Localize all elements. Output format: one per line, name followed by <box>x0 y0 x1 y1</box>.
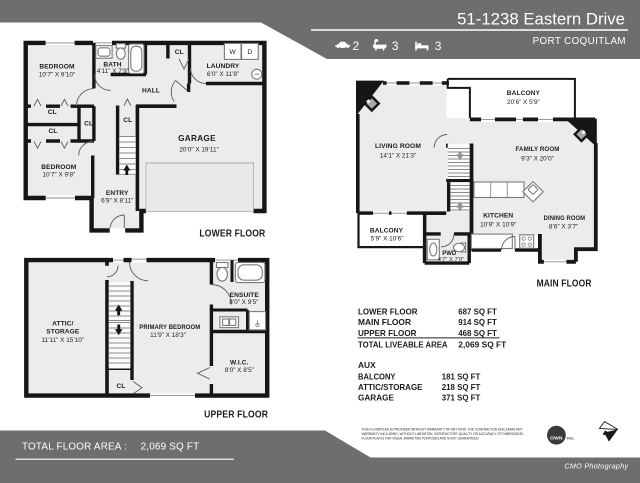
svg-text:GARAGE: GARAGE <box>178 134 216 143</box>
svg-text:D: D <box>247 49 252 56</box>
svg-text:11’11” X 15’10”: 11’11” X 15’10” <box>42 337 84 344</box>
svg-text:CL: CL <box>49 128 58 135</box>
svg-text:10’7” X 9’8”: 10’7” X 9’8” <box>42 172 75 179</box>
svg-text:FLOOR PLAN IS FOR VISUAL MARKE: FLOOR PLAN IS FOR VISUAL MARKETING PURPO… <box>362 437 479 441</box>
svg-text:CL: CL <box>84 121 93 128</box>
svg-text:BALCONY: BALCONY <box>358 372 396 382</box>
svg-text:BEDROOM: BEDROOM <box>39 64 75 71</box>
svg-text:GARAGE: GARAGE <box>358 393 394 403</box>
svg-text:4’7” X 7’0”: 4’7” X 7’0” <box>438 257 464 263</box>
svg-text:BEDROOM: BEDROOM <box>41 164 77 171</box>
svg-text:LOWER FLOOR: LOWER FLOOR <box>199 229 265 240</box>
svg-text:468 SQ FT: 468 SQ FT <box>458 328 497 338</box>
svg-text:LAUNDRY: LAUNDRY <box>207 63 240 70</box>
svg-text:AUX: AUX <box>358 360 376 370</box>
svg-text:10’7” X 9’10”: 10’7” X 9’10” <box>39 72 75 79</box>
svg-text:8’6” X 3’7”: 8’6” X 3’7” <box>549 223 578 230</box>
svg-text:3: 3 <box>392 39 399 53</box>
svg-text:TOTAL FLOOR AREA :: TOTAL FLOOR AREA : <box>22 441 127 452</box>
svg-text:PRIMARY BEDROOM: PRIMARY BEDROOM <box>139 324 200 331</box>
svg-text:BALCONY: BALCONY <box>370 228 404 235</box>
svg-text:11’9” X 18’3”: 11’9” X 18’3” <box>150 332 186 339</box>
svg-text:LOWER FLOOR: LOWER FLOOR <box>358 307 418 317</box>
svg-text:LIVING ROOM: LIVING ROOM <box>375 143 421 150</box>
svg-text:BALCONY: BALCONY <box>507 90 541 97</box>
svg-text:W: W <box>229 49 236 56</box>
svg-text:20’6” X 5’9”: 20’6” X 5’9” <box>507 99 540 106</box>
svg-text:DINING ROOM: DINING ROOM <box>544 215 586 222</box>
svg-text:6’0” X 11’8”: 6’0” X 11’8” <box>207 71 239 78</box>
svg-text:CMO Photography: CMO Photography <box>564 461 628 470</box>
svg-text:3: 3 <box>435 39 442 53</box>
svg-text:CL: CL <box>48 109 57 116</box>
svg-text:181 SQ FT: 181 SQ FT <box>442 372 481 382</box>
svg-text:W.I.C.: W.I.C. <box>230 359 249 366</box>
svg-text:UPPER FLOOR: UPPER FLOOR <box>358 328 417 338</box>
svg-text:20’0” X 19’11”: 20’0” X 19’11” <box>179 146 218 153</box>
svg-text:ENTRY: ENTRY <box>106 190 129 197</box>
svg-text:914 SQ FT: 914 SQ FT <box>458 317 497 327</box>
svg-text:8’0” X 9’5”: 8’0” X 9’5” <box>229 299 258 306</box>
svg-text:10’9” X 10’9”: 10’9” X 10’9” <box>480 222 516 229</box>
svg-text:ENSUITE: ENSUITE <box>230 292 260 299</box>
svg-text:2: 2 <box>353 39 360 53</box>
svg-text:PWD: PWD <box>442 251 457 257</box>
svg-text:6’9” X 8’11”: 6’9” X 8’11” <box>101 198 133 205</box>
svg-text:8’0” X 8’5”: 8’0” X 8’5” <box>225 367 254 374</box>
svg-text:FAMILY ROOM: FAMILY ROOM <box>516 146 560 153</box>
svg-text:218 SQ FT: 218 SQ FT <box>442 382 481 392</box>
svg-text:TOTAL LIVEABLE AREA: TOTAL LIVEABLE AREA <box>358 339 448 349</box>
svg-text:9’3” X 20’0”: 9’3” X 20’0” <box>521 156 554 163</box>
svg-text:ATTIC/: ATTIC/ <box>52 320 73 327</box>
svg-text:687 SQ FT: 687 SQ FT <box>458 307 497 317</box>
svg-text:CL: CL <box>123 117 132 124</box>
svg-text:REL: REL <box>567 436 576 441</box>
svg-text:KITCHEN: KITCHEN <box>483 212 513 219</box>
svg-text:HALL: HALL <box>142 87 160 94</box>
svg-text:STORAGE: STORAGE <box>46 329 80 336</box>
svg-text:51-1238 Eastern Drive: 51-1238 Eastern Drive <box>457 10 625 29</box>
svg-text:CL: CL <box>117 383 126 390</box>
svg-text:2,069 SQ FT: 2,069 SQ FT <box>141 441 200 452</box>
svg-text:WARRANTY INCLUDING, WITHOUT LI: WARRANTY INCLUDING, WITHOUT LIMITATION, … <box>362 432 524 436</box>
svg-text:371 SQ FT: 371 SQ FT <box>442 393 481 403</box>
svg-text:UPPER FLOOR: UPPER FLOOR <box>204 410 268 421</box>
svg-text:2,069 SQ FT: 2,069 SQ FT <box>458 339 507 349</box>
svg-text:OWN: OWN <box>550 436 563 442</box>
svg-text:PORT COQUITLAM: PORT COQUITLAM <box>533 36 626 47</box>
svg-text:THIS FLOORPLAN IS PROVIDED WIT: THIS FLOORPLAN IS PROVIDED WITHOUT WARRA… <box>362 428 524 432</box>
svg-text:4’11” X 7’9”: 4’11” X 7’9” <box>97 68 129 75</box>
svg-text:14’1” X 21’3”: 14’1” X 21’3” <box>380 153 416 160</box>
svg-text:MAIN FLOOR: MAIN FLOOR <box>358 317 411 327</box>
svg-text:5’9” X 10’6”: 5’9” X 10’6” <box>371 236 404 243</box>
svg-text:ATTIC/STORAGE: ATTIC/STORAGE <box>358 382 423 392</box>
svg-text:CL: CL <box>175 49 184 56</box>
svg-text:MAIN FLOOR: MAIN FLOOR <box>537 278 592 289</box>
